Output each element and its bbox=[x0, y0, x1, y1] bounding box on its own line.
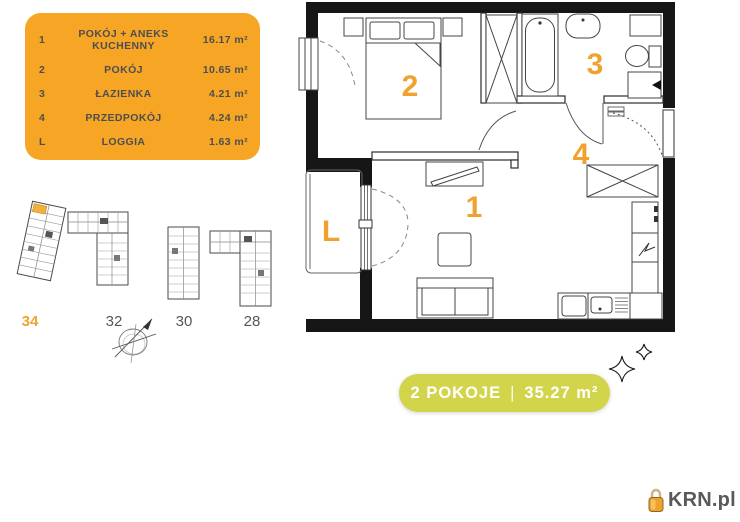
room-label-4: 4 bbox=[573, 138, 590, 171]
floor-plan: 1 2 3 4 L bbox=[299, 2, 675, 332]
listing-floorplan-image: 1 POKÓJ + ANEKS KUCHENNY 16.17 m² 2 POKÓ… bbox=[0, 0, 740, 522]
bathroom-sink bbox=[566, 14, 600, 38]
room-label-3: 3 bbox=[587, 48, 604, 81]
badge-separator: | bbox=[510, 384, 515, 403]
bathtub bbox=[522, 14, 558, 96]
building-label-32: 32 bbox=[106, 313, 123, 330]
badge-rooms-label: 2 POKOJE bbox=[411, 384, 502, 403]
table bbox=[438, 233, 471, 266]
loggia-door bbox=[359, 185, 408, 270]
logo-text: KRN.pl bbox=[668, 489, 736, 512]
electrical-panel bbox=[632, 233, 658, 262]
fridge bbox=[632, 202, 658, 233]
window bbox=[299, 38, 318, 90]
kitchen-counter bbox=[558, 293, 662, 319]
tv-stand bbox=[426, 162, 483, 186]
bathroom-shelf bbox=[630, 15, 661, 36]
kitchen-cabinet bbox=[632, 262, 658, 293]
hallway-wardrobe bbox=[587, 165, 658, 197]
building-28 bbox=[210, 231, 271, 306]
site-plan: 34 32 30 28 bbox=[17, 201, 271, 330]
sparkle-icon bbox=[609, 344, 652, 382]
building-30 bbox=[168, 227, 199, 299]
area-badge: 2 POKOJE | 35.27 m² bbox=[399, 374, 610, 412]
building-label-28: 28 bbox=[244, 313, 261, 330]
floor-plan-drawing: 1 2 3 4 L bbox=[0, 0, 740, 522]
sofa bbox=[417, 278, 493, 318]
nightstand bbox=[344, 18, 363, 36]
krn-logo: KRN.pl bbox=[647, 487, 736, 513]
building-32 bbox=[68, 212, 128, 285]
building-34 bbox=[17, 201, 66, 280]
washing-machine bbox=[628, 72, 661, 98]
toilet bbox=[626, 46, 662, 68]
entrance-door bbox=[608, 107, 675, 158]
room-label-1: 1 bbox=[466, 191, 483, 224]
building-label-30: 30 bbox=[176, 313, 193, 330]
wardrobe bbox=[486, 15, 517, 103]
room-label-2: 2 bbox=[402, 70, 419, 103]
window-swing-arc bbox=[320, 41, 355, 86]
padlock-icon bbox=[647, 487, 665, 513]
badge-area-label: 35.27 m² bbox=[524, 384, 598, 403]
nightstand bbox=[443, 18, 462, 36]
bed bbox=[366, 18, 441, 119]
building-label-34: 34 bbox=[22, 313, 39, 330]
bedroom-door-arc bbox=[479, 111, 516, 150]
room-label-L: L bbox=[322, 215, 340, 248]
